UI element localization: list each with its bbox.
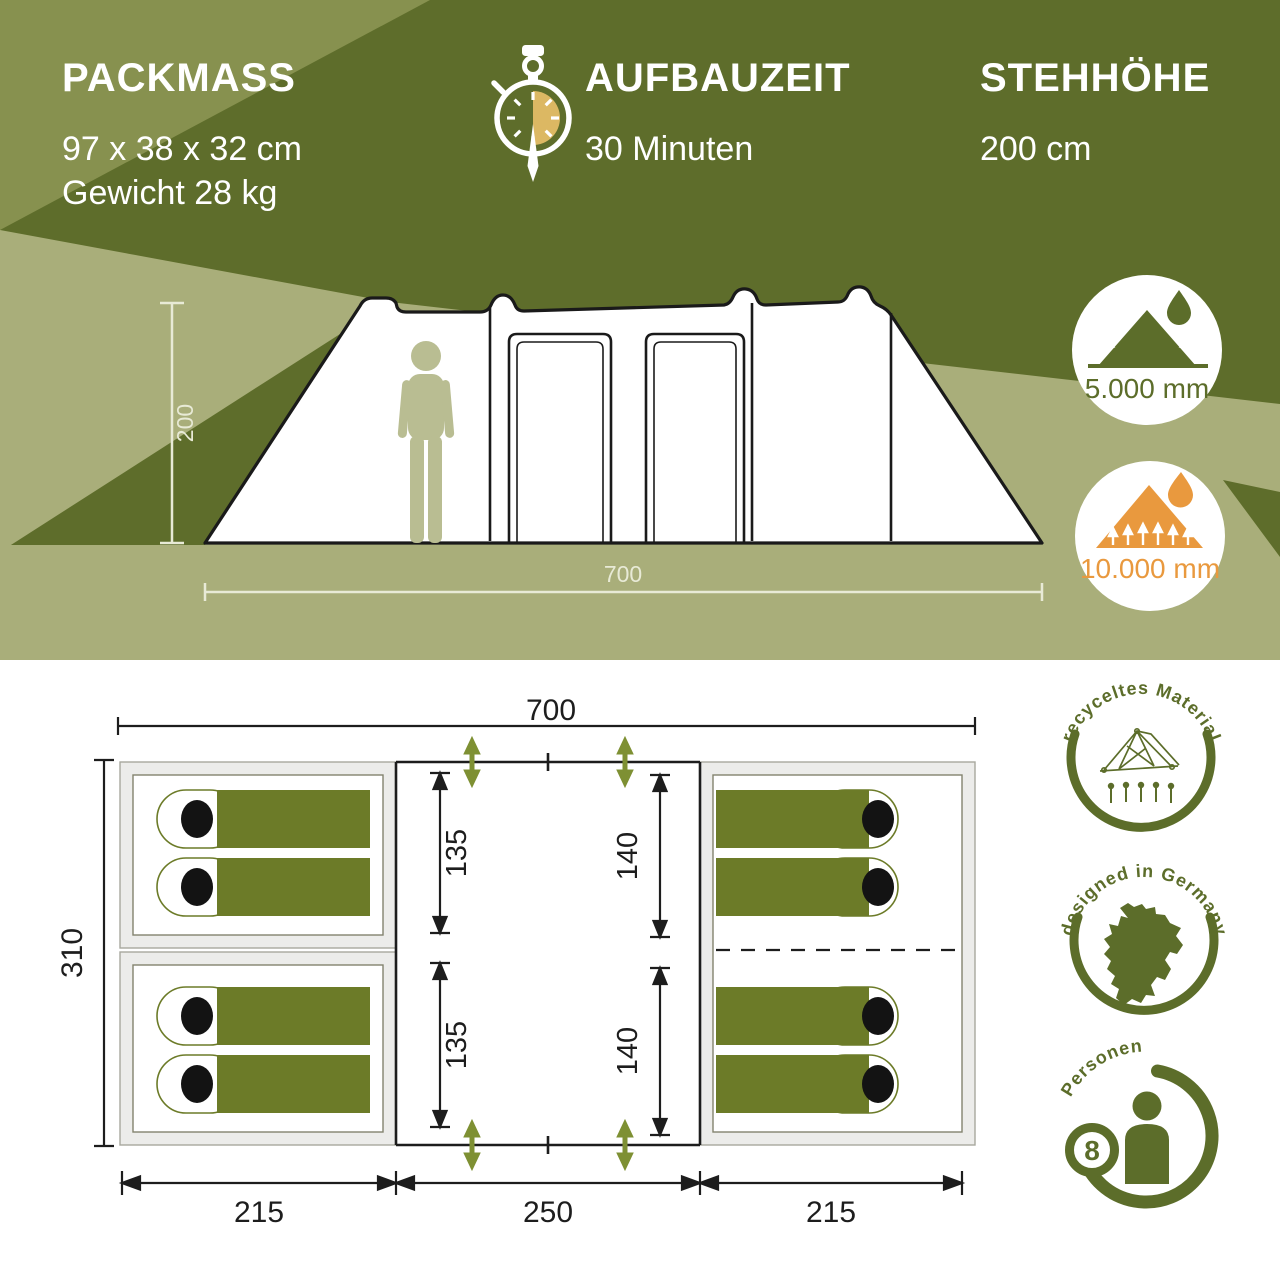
left-cabin-top (120, 762, 396, 948)
right-cabin-depth-label-bottom: 140 (612, 1027, 644, 1075)
packmass-weight: Gewicht 28 kg (62, 172, 302, 216)
floor-plan-graphic: 700 310 (0, 660, 1280, 1280)
segment-width-label-center: 250 (523, 1196, 573, 1229)
packmass-title: PACKMASS (62, 58, 302, 98)
flysheet-water-column-badge: 5.000 mm (1072, 275, 1222, 425)
packmass-dimensions: 97 x 38 x 32 cm (62, 128, 302, 172)
groundsheet-water-column-value: 10.000 mm (1080, 553, 1220, 584)
tent-infographic: 200 700 (0, 0, 1280, 1280)
left-cabin-depth-label-top: 135 (441, 829, 473, 877)
persons-count: 8 (1084, 1135, 1100, 1166)
tent-height-label: 200 (172, 404, 198, 442)
sleeping-bag (716, 1055, 898, 1113)
sleeping-bag (157, 858, 370, 916)
segment-width-label-right: 215 (806, 1196, 856, 1229)
left-cabin-bottom (120, 952, 396, 1145)
stehhoehe-title: STEHHÖHE (980, 58, 1210, 98)
aufbauzeit-spec: AUFBAUZEIT 30 Minuten (585, 58, 851, 172)
sleeping-bag (716, 858, 898, 916)
stehhoehe-value: 200 cm (980, 128, 1210, 172)
tent-width-label: 700 (604, 561, 642, 587)
sleeping-bag (157, 1055, 370, 1113)
right-cabin-depth-label-top: 140 (612, 832, 644, 880)
segment-width-label-left: 215 (234, 1196, 284, 1229)
groundsheet-water-column-badge: 10.000 mm (1075, 461, 1225, 611)
flysheet-water-column-value: 5.000 mm (1085, 373, 1210, 404)
aufbauzeit-title: AUFBAUZEIT (585, 58, 851, 98)
stehhoehe-spec: STEHHÖHE 200 cm (980, 58, 1210, 172)
plan-width-label: 700 (526, 694, 576, 727)
sleeping-bag (157, 790, 370, 848)
aufbauzeit-value: 30 Minuten (585, 128, 851, 172)
sleeping-bag (716, 790, 898, 848)
sleeping-bag (157, 987, 370, 1045)
left-cabin-depth-label-bottom: 135 (441, 1021, 473, 1069)
plan-depth-label: 310 (56, 928, 89, 978)
packmass-spec: PACKMASS 97 x 38 x 32 cm Gewicht 28 kg (62, 58, 302, 215)
sleeping-bag (716, 987, 898, 1045)
